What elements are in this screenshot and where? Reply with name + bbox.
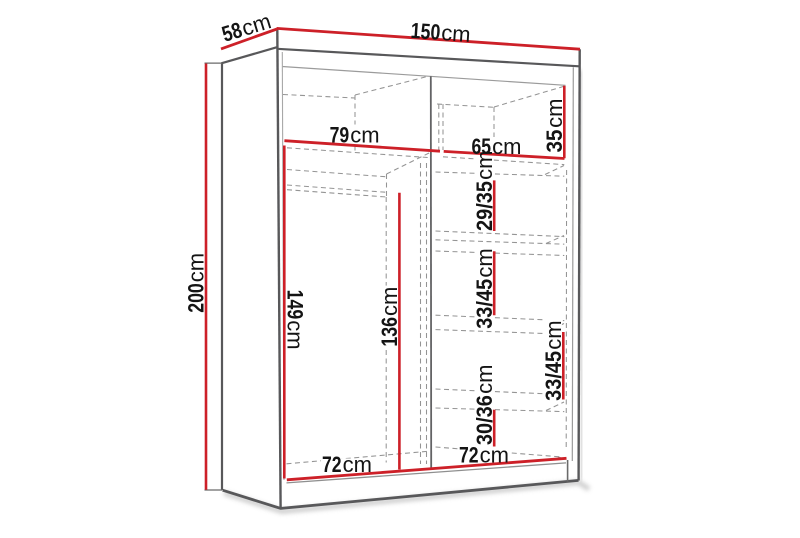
svg-text:35: 35 xyxy=(542,130,567,153)
svg-text:cm: cm xyxy=(472,248,497,277)
svg-text:cm: cm xyxy=(542,99,567,128)
svg-text:cm: cm xyxy=(440,20,471,47)
svg-text:cm: cm xyxy=(283,320,308,349)
svg-text:cm: cm xyxy=(350,123,379,148)
svg-text:cm: cm xyxy=(480,442,509,467)
svg-text:cm: cm xyxy=(377,287,402,316)
svg-text:29/35: 29/35 xyxy=(472,181,497,231)
svg-text:cm: cm xyxy=(343,452,372,477)
svg-text:149: 149 xyxy=(283,290,308,320)
svg-text:cm: cm xyxy=(541,320,566,349)
svg-text:136: 136 xyxy=(377,317,402,347)
svg-text:cm: cm xyxy=(472,150,497,179)
svg-text:72: 72 xyxy=(459,442,479,467)
svg-text:200: 200 xyxy=(184,283,209,313)
svg-text:33/45: 33/45 xyxy=(472,279,497,329)
svg-text:72: 72 xyxy=(322,452,342,477)
svg-text:79: 79 xyxy=(330,123,350,148)
svg-text:cm: cm xyxy=(184,253,209,282)
svg-text:150: 150 xyxy=(410,18,441,45)
svg-text:30/36: 30/36 xyxy=(472,395,497,445)
svg-text:33/45: 33/45 xyxy=(541,351,566,401)
svg-text:cm: cm xyxy=(472,365,497,394)
